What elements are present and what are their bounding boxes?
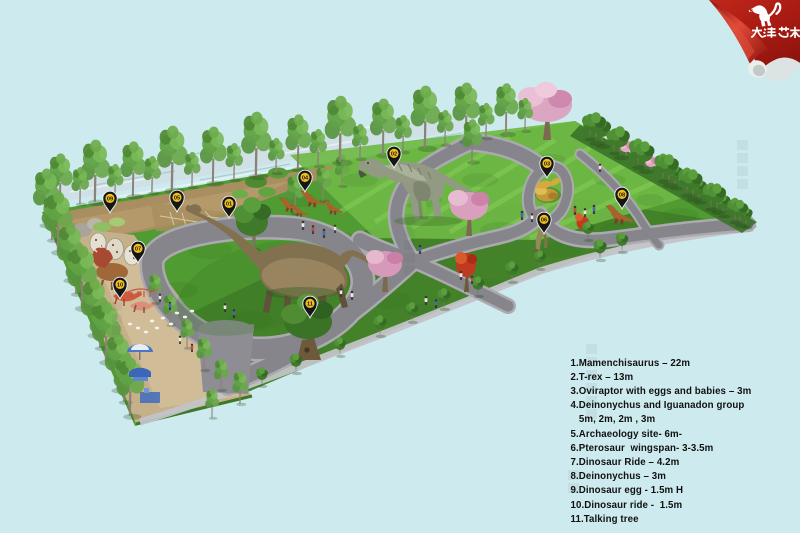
svg-text:03: 03 [544, 162, 550, 168]
svg-text:01: 01 [226, 202, 232, 208]
svg-text:11: 11 [307, 302, 313, 308]
svg-text:06: 06 [541, 218, 547, 224]
svg-text:02: 02 [391, 152, 397, 158]
svg-text:09: 09 [107, 197, 113, 203]
svg-text:10: 10 [117, 283, 123, 289]
svg-text:08: 08 [619, 193, 625, 199]
svg-text:07: 07 [135, 247, 141, 253]
svg-text:05: 05 [174, 196, 180, 202]
svg-text:04: 04 [302, 176, 309, 182]
